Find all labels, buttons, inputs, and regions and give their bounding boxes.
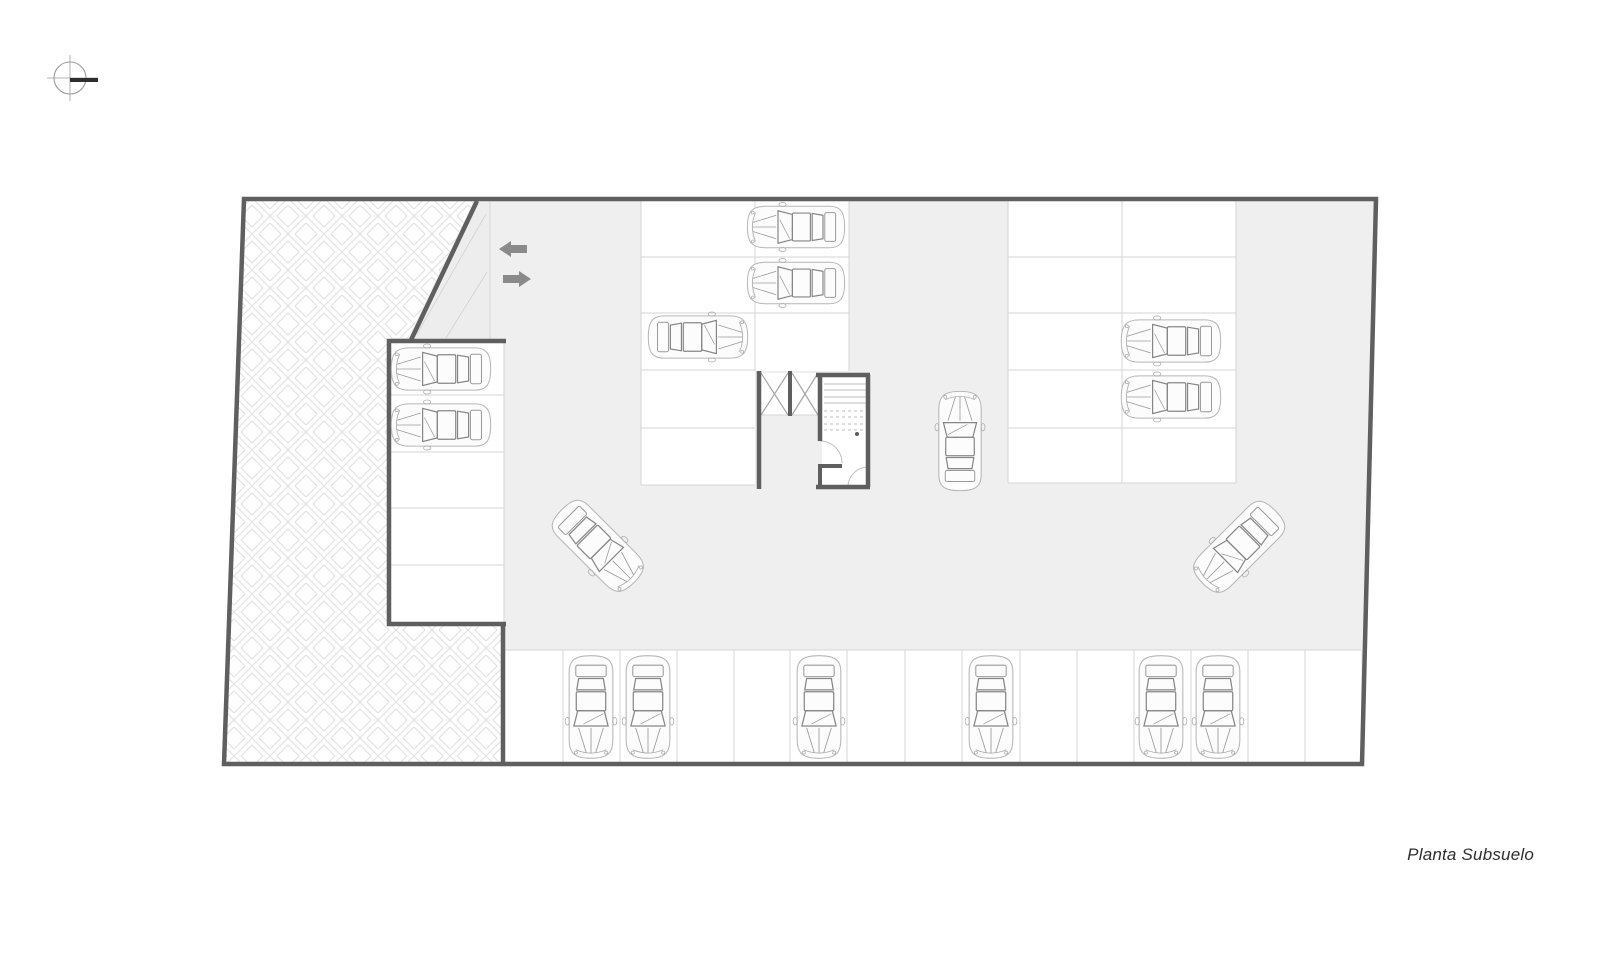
parked-car (747, 203, 844, 252)
parked-car (1192, 656, 1244, 759)
floor-plan-drawing (0, 0, 1612, 967)
parked-car (391, 344, 490, 394)
parked-car (391, 400, 490, 450)
parked-car (793, 656, 845, 759)
parked-car (965, 656, 1017, 759)
parked-car (565, 656, 617, 759)
parked-car (1135, 656, 1187, 759)
parked-car (1121, 316, 1220, 366)
parked-car (622, 656, 674, 759)
north-compass-icon (47, 55, 98, 101)
floor-plan-canvas: Planta Subsuelo (0, 0, 1612, 967)
parked-car (648, 312, 747, 362)
parked-car (1121, 372, 1220, 422)
plan-title: Planta Subsuelo (1407, 845, 1534, 865)
parked-car (747, 259, 844, 308)
stair-break-dot (855, 432, 859, 436)
parked-car (935, 391, 985, 490)
